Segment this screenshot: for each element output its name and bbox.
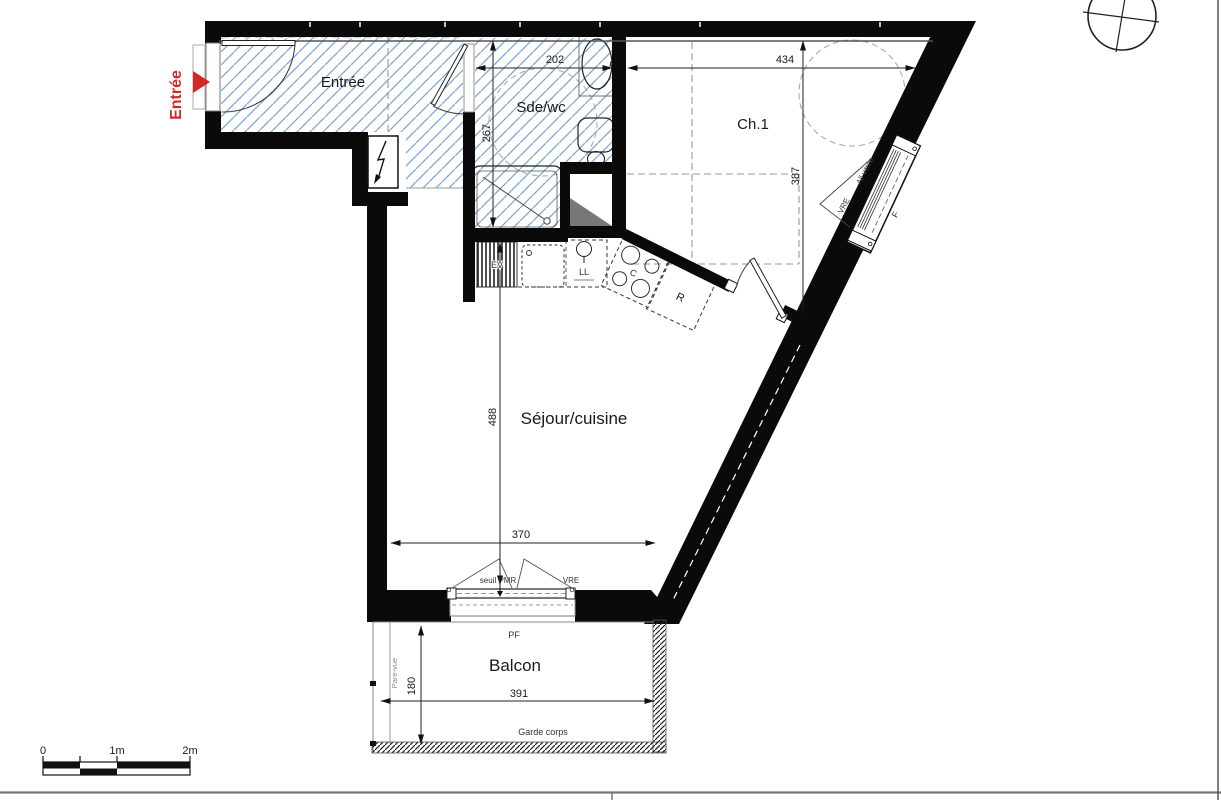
- sdewc-door-frame: [464, 44, 474, 112]
- scale-0: 0: [40, 745, 46, 757]
- entrance-door-leaf: [222, 41, 295, 46]
- scale-2m: 2m: [182, 745, 197, 757]
- dim-267: 267: [481, 124, 493, 142]
- seuil-pmr-label: seuil PMR: [480, 576, 517, 585]
- dim-391: 391: [510, 688, 528, 700]
- vre-bay-label: VRE: [563, 576, 579, 585]
- room-balcon: Balcon: [489, 656, 541, 675]
- dim-202: 202: [546, 54, 564, 66]
- scale-1m: 1m: [109, 745, 124, 757]
- dim-387: 387: [790, 167, 802, 185]
- wall-sdewc-east: [612, 30, 626, 174]
- wall-north: [205, 21, 957, 37]
- ev-label: EV: [491, 260, 503, 270]
- room-entree: Entrée: [321, 74, 365, 91]
- room-sdewc: Sde/wc: [516, 99, 566, 116]
- dim-370: 370: [512, 529, 530, 541]
- wall-sejour-west: [367, 198, 387, 622]
- pf-label: PF: [508, 630, 520, 640]
- floor-plan-page: C R: [0, 0, 1221, 800]
- dim-434: 434: [776, 54, 794, 66]
- wall-west-stub-top: [205, 21, 221, 44]
- wall-sejour-south-left: [367, 590, 451, 622]
- wall-sdewc-west: [463, 112, 475, 302]
- wall-sdewc-south: [463, 228, 568, 242]
- entrance-red-label: Entrée: [168, 70, 185, 120]
- wall-entree-south: [205, 132, 365, 149]
- duct: [570, 174, 612, 226]
- railing-bottom: [372, 742, 666, 753]
- room-sejour: Séjour/cuisine: [521, 409, 628, 428]
- ll-label: LL: [579, 267, 589, 277]
- entrance-door-frame: [206, 43, 220, 111]
- duct-wall-right: [611, 162, 626, 238]
- floor-plan-svg: C R: [0, 0, 1221, 800]
- dim-180: 180: [406, 677, 418, 695]
- room-ch1: Ch.1: [737, 116, 769, 133]
- window-sill: [450, 598, 575, 616]
- railing-right: [653, 620, 666, 752]
- dim-488: 488: [487, 408, 499, 426]
- electrical-panel: [368, 136, 398, 188]
- pare-vue-label: Pare-vue: [390, 658, 399, 688]
- garde-corps-label: Garde corps: [518, 727, 568, 737]
